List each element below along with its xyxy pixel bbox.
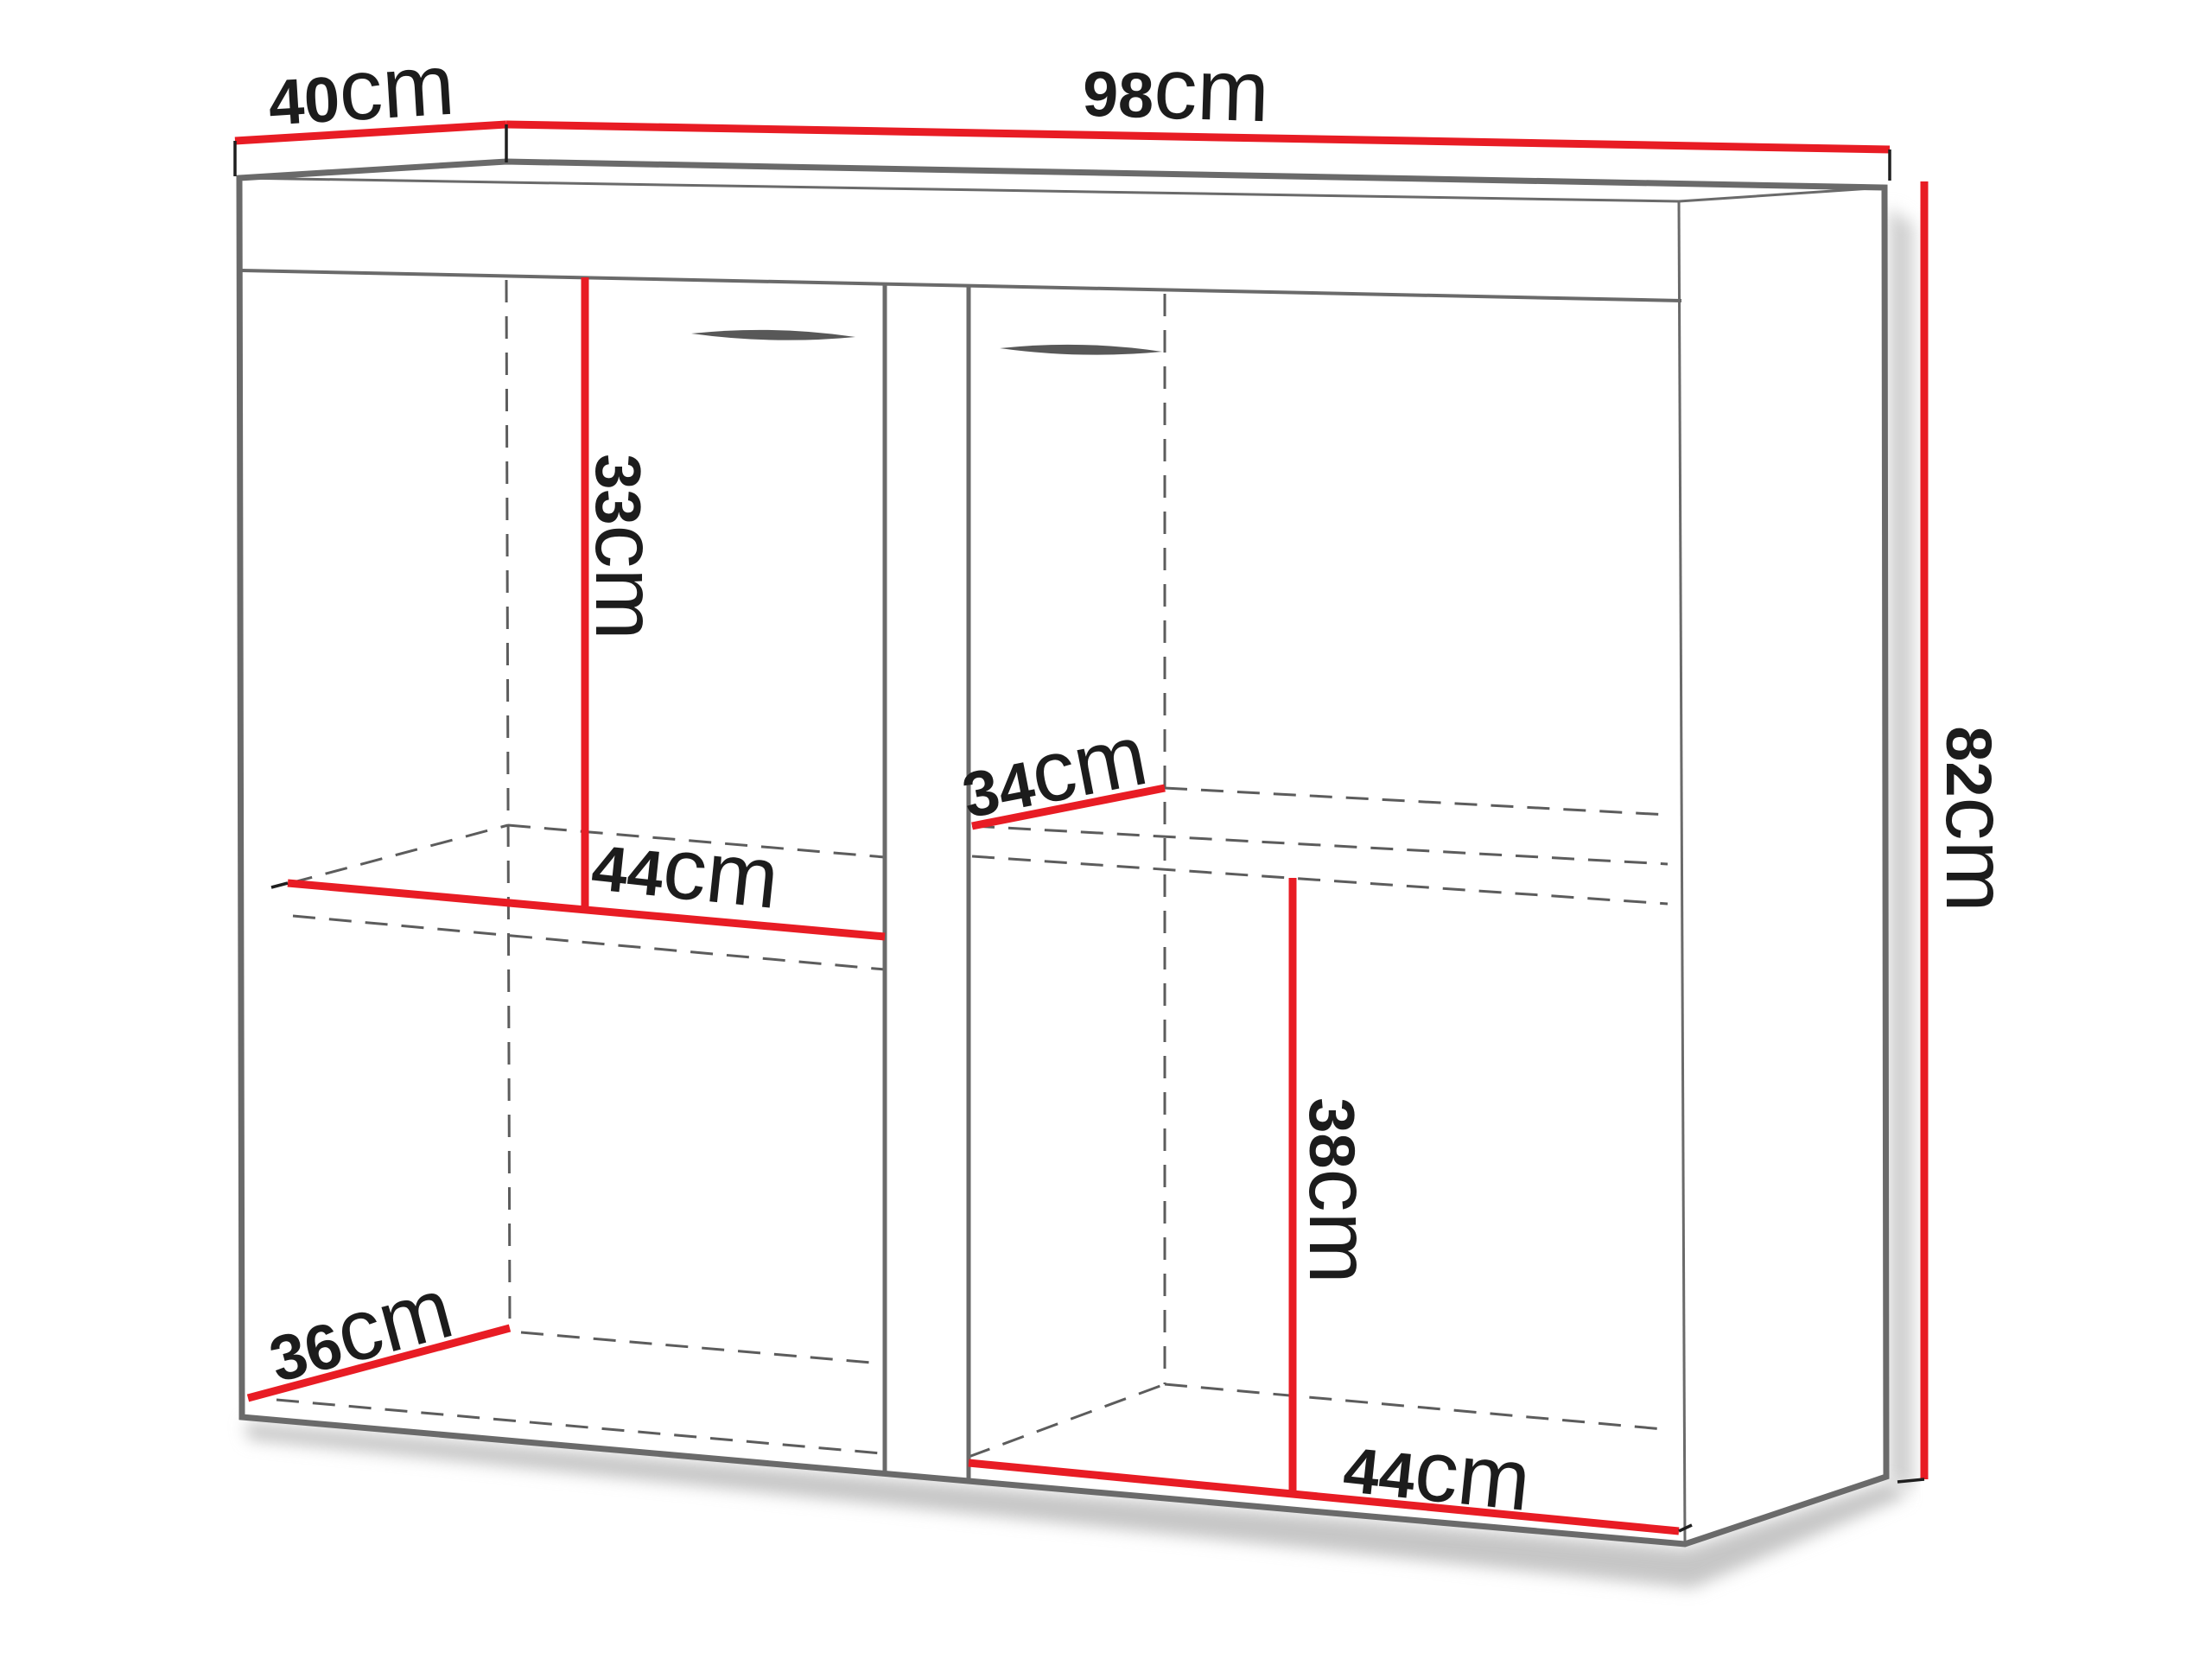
sideboard-dimension-diagram: 40cm 98cm 82cm 33cm 44cm 34cm 38cm 36cm … <box>0 0 2212 1659</box>
label-top-depth: 40cm <box>265 36 457 144</box>
label-top-width: 98cm <box>1082 38 1271 141</box>
label-height: 82cm <box>1928 726 2024 912</box>
diagram-stage: 40cm 98cm 82cm 33cm 44cm 34cm 38cm 36cm … <box>0 0 2212 1659</box>
right-side-panel <box>1679 188 1886 1544</box>
shadow-right <box>1889 207 1913 1491</box>
